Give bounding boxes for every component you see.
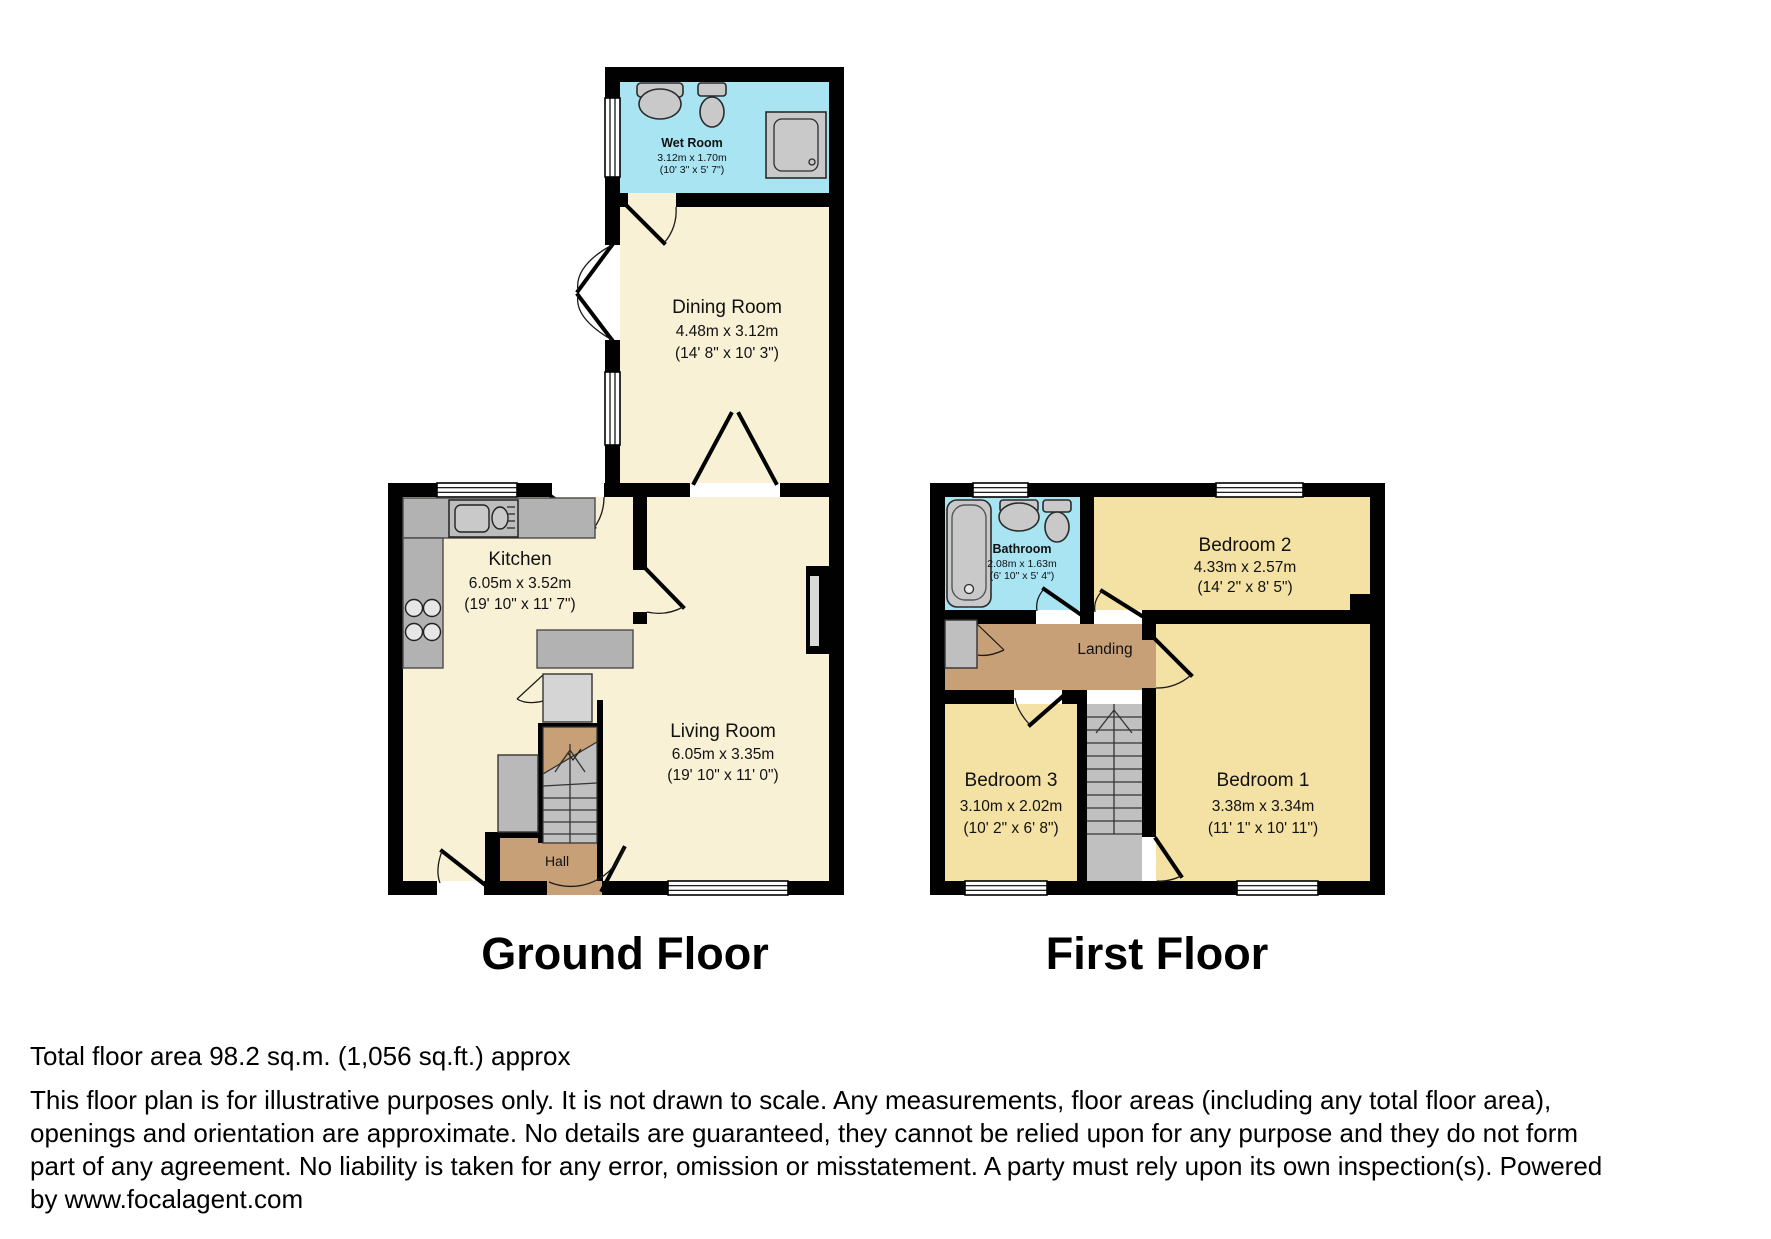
bathroom-dims-ft: (6' 10" x 5' 4") <box>990 570 1055 582</box>
living-room-dims-ft: (19' 10" x 11' 0") <box>667 767 778 784</box>
hall-label: Hall <box>545 853 569 869</box>
kitchen-peninsula <box>537 630 633 668</box>
bedroom1-label: Bedroom 1 <box>1217 770 1310 791</box>
living-room-dims-m: 6.05m x 3.35m <box>672 746 775 763</box>
bedroom2-dims-ft: (14' 2" x 8' 5") <box>1197 579 1292 596</box>
disclaimer-line: by www.focalagent.com <box>30 1183 1602 1216</box>
bedroom3-floor <box>945 704 1077 881</box>
bedroom3-dims-m: 3.10m x 2.02m <box>960 798 1063 815</box>
bedroom1-dims-m: 3.38m x 3.34m <box>1212 798 1315 815</box>
fireplace-opening <box>810 576 819 646</box>
dining-room-dims-m: 4.48m x 3.12m <box>676 323 779 340</box>
hall-cupboard <box>498 755 538 832</box>
bedroom3-window <box>965 881 1047 895</box>
bathroom-window <box>973 483 1028 497</box>
kitchen-living-floor <box>403 497 829 881</box>
toilet-icon <box>698 83 726 127</box>
dining-room-label: Dining Room <box>672 297 782 318</box>
basin-icon <box>999 500 1039 531</box>
shower-tray-icon <box>766 112 826 178</box>
kitchen-dims-m: 6.05m x 3.52m <box>469 575 572 592</box>
disclaimer: This floor plan is for illustrative purp… <box>30 1084 1602 1216</box>
wet-room-dims-m: 3.12m x 1.70m <box>657 152 727 164</box>
bedroom3-label: Bedroom 3 <box>965 770 1058 791</box>
bathroom-label: Bathroom <box>992 542 1051 556</box>
landing-label: Landing <box>1077 641 1132 658</box>
bathroom-dims-m: 2.08m x 1.63m <box>987 558 1057 570</box>
basin-icon <box>637 83 683 119</box>
wet-room-window <box>605 98 620 177</box>
ground-floor-plan: Wet Room 3.12m x 1.70m (10' 3" x 5' 7") … <box>388 67 844 895</box>
bedroom2-dims-m: 4.33m x 2.57m <box>1194 559 1297 576</box>
landing-cupboard <box>945 620 977 668</box>
kitchen-window <box>437 483 517 497</box>
disclaimer-line: This floor plan is for illustrative purp… <box>30 1084 1602 1117</box>
kitchen-dims-ft: (19' 10" x 11' 7") <box>464 596 575 613</box>
kitchen-sink-icon <box>449 500 518 537</box>
dining-room-dims-ft: (14' 8" x 10' 3") <box>675 345 779 362</box>
kitchen-label: Kitchen <box>488 549 551 570</box>
floorplan-page: { "ground_floor": { "title": "Ground Flo… <box>0 0 1771 1239</box>
first-floor-plan: Bathroom 2.08m x 1.63m (6' 10" x 5' 4") … <box>930 483 1385 895</box>
wet-room-label: Wet Room <box>661 136 723 150</box>
bedroom3-dims-ft: (10' 2" x 6' 8") <box>963 820 1058 837</box>
bedroom2-window <box>1216 483 1303 497</box>
dining-french-doors <box>578 245 612 340</box>
understairs-cupboard <box>543 674 592 722</box>
toilet-icon <box>1043 500 1071 542</box>
front-door-threshold <box>547 881 602 895</box>
dining-room-window <box>605 372 620 445</box>
bedroom2-label: Bedroom 2 <box>1199 535 1292 556</box>
bedroom1-floor <box>1156 624 1370 881</box>
living-room-label: Living Room <box>670 721 776 742</box>
ground-floor-title: Ground Floor <box>481 928 768 980</box>
ground-floor-stairs <box>543 727 597 843</box>
total-floor-area: Total floor area 98.2 sq.m. (1,056 sq.ft… <box>30 1040 571 1073</box>
disclaimer-line: openings and orientation are approximate… <box>30 1117 1602 1150</box>
living-room-window <box>668 881 788 895</box>
disclaimer-line: part of any agreement. No liability is t… <box>30 1150 1602 1183</box>
wet-room-dims-ft: (10' 3" x 5' 7") <box>660 164 725 176</box>
bathtub-icon <box>947 500 991 607</box>
first-floor-title: First Floor <box>1046 928 1269 980</box>
bedroom1-dims-ft: (11' 1" x 10' 11") <box>1208 820 1318 837</box>
fireplace <box>806 566 829 654</box>
bedroom1-window <box>1237 881 1318 895</box>
